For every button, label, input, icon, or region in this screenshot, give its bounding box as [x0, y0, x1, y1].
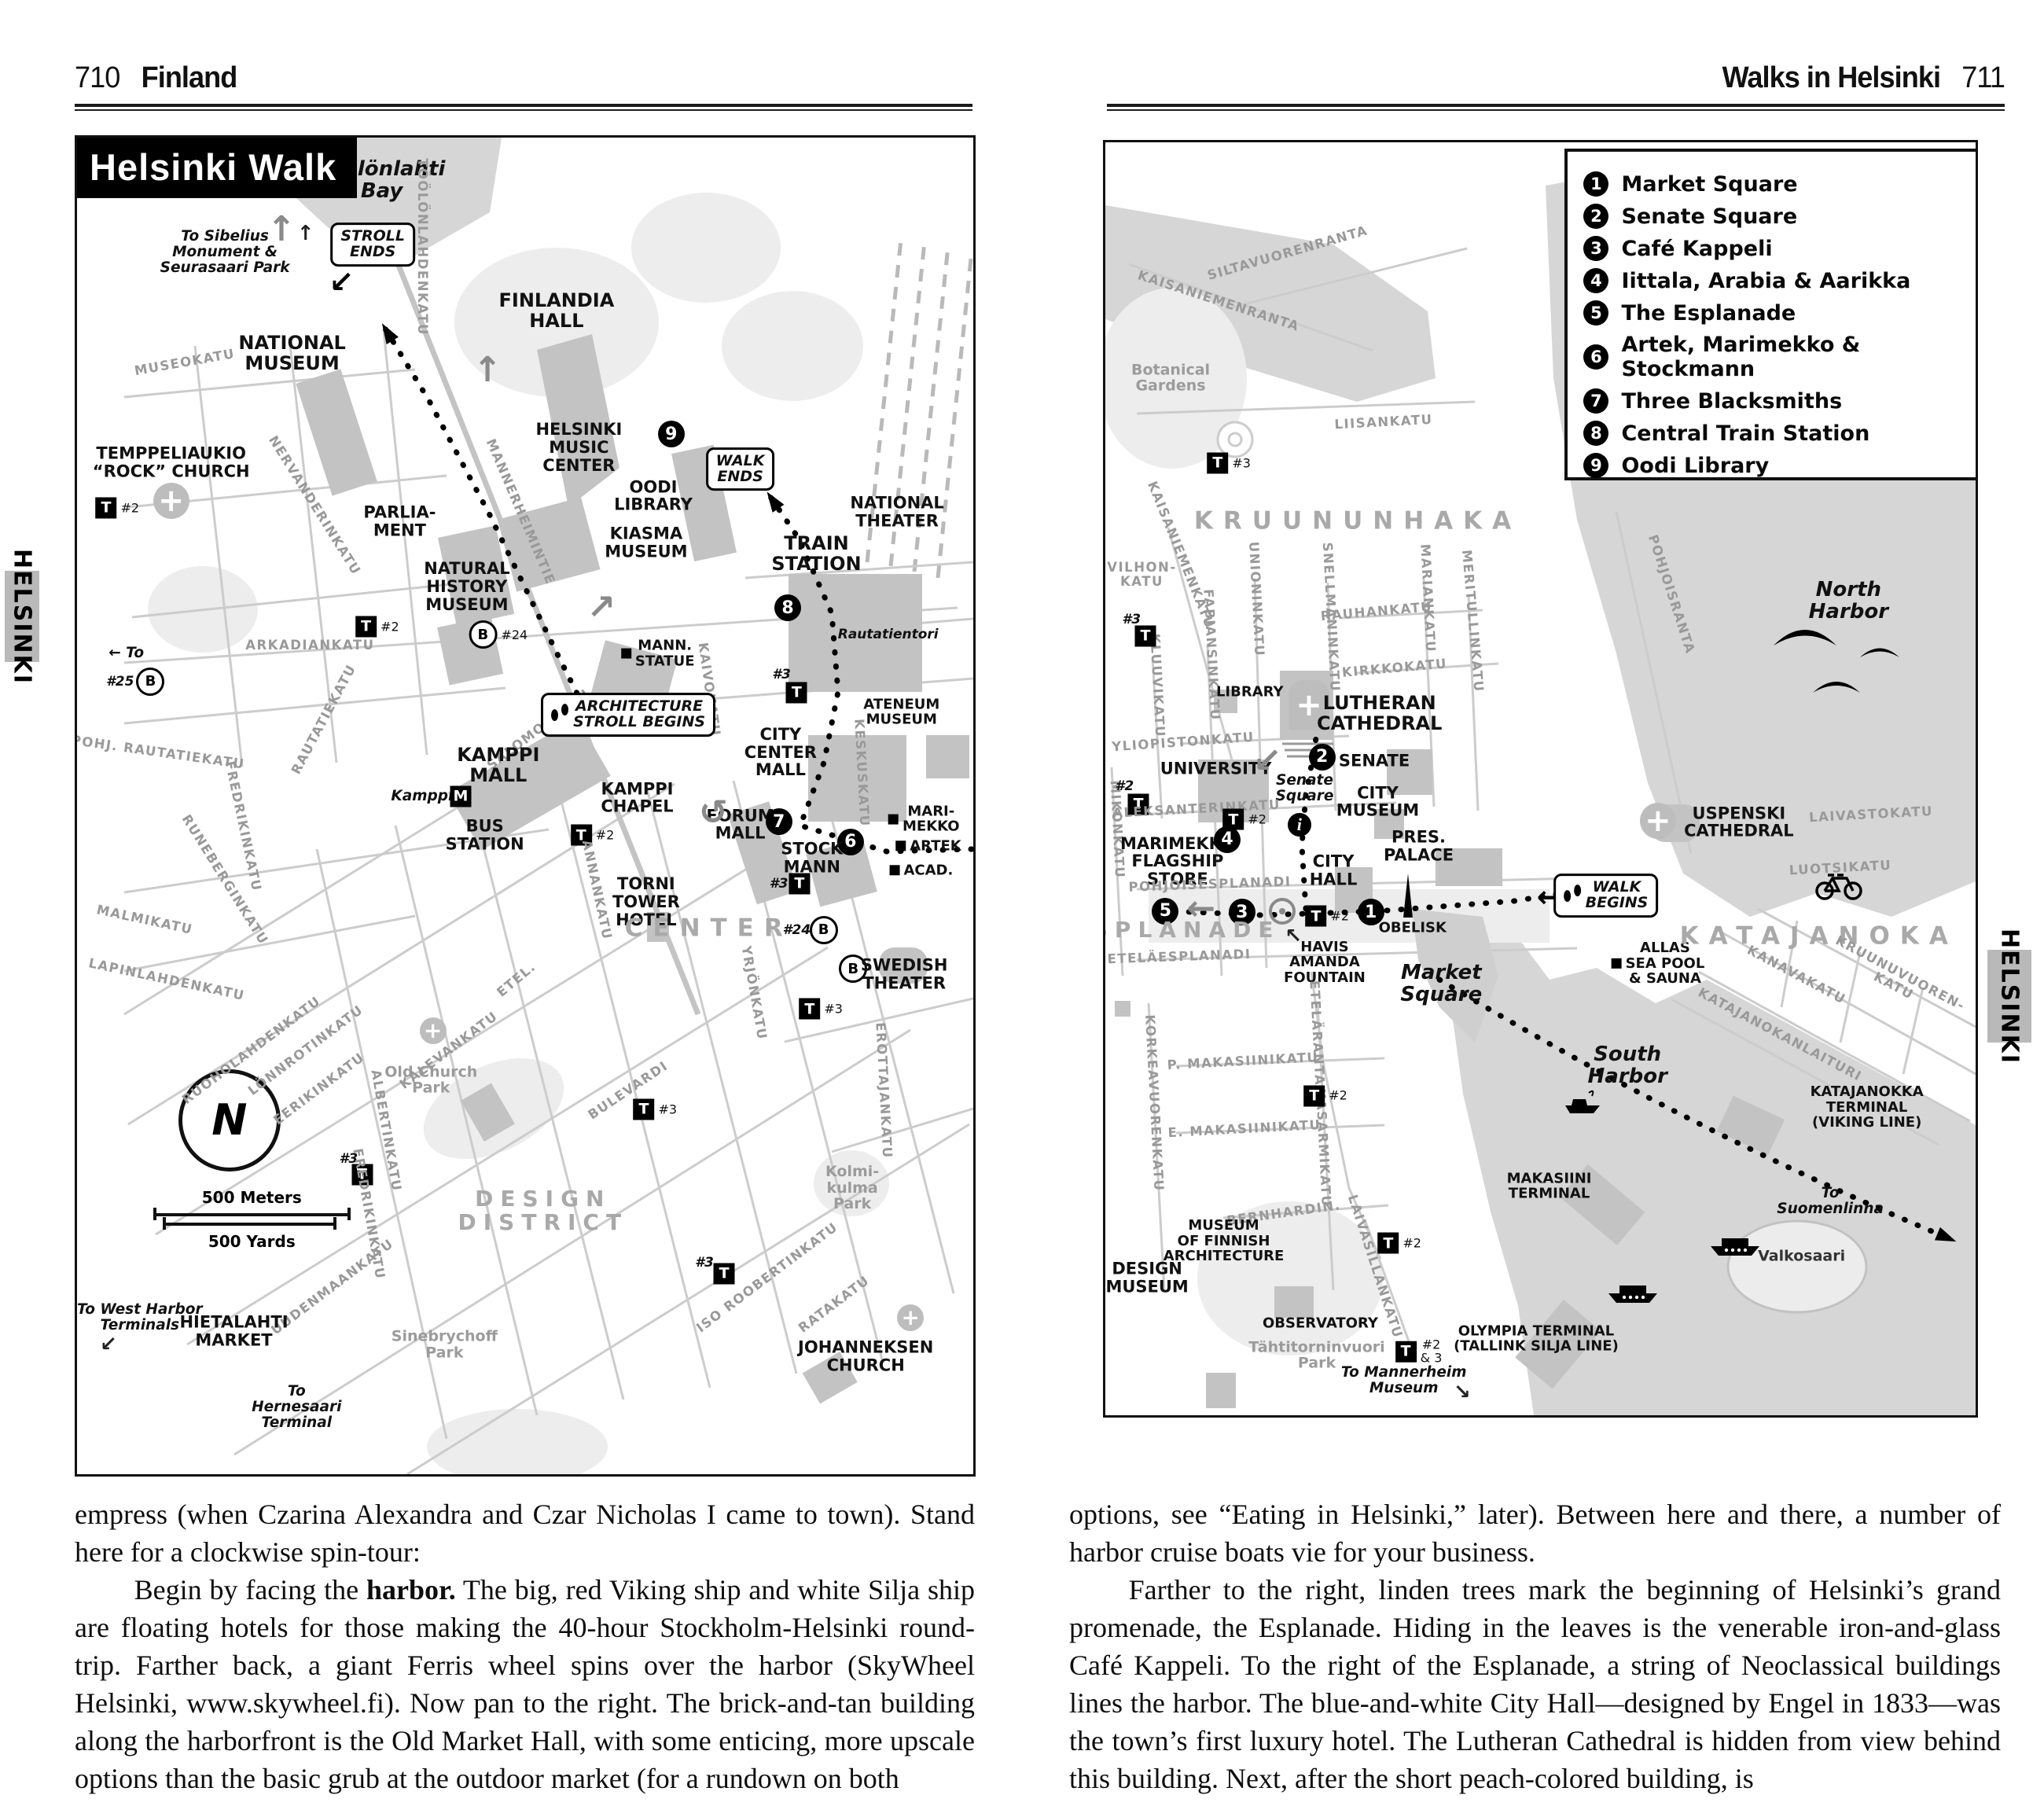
helsinki-walk-map: Helsinki Walk + + + N 500 Meters 500 Yar…	[75, 135, 976, 1477]
map-label: ↘	[1454, 1381, 1471, 1403]
map-label: T	[714, 1263, 735, 1285]
body-paragraph: options, see “Eating in Helsinki,” later…	[1069, 1495, 2001, 1571]
map-label: To Hernesaari Terminal	[252, 1384, 341, 1431]
map-label-text: LUTHERAN CATHEDRAL	[1317, 693, 1442, 734]
map-label-text: #24	[501, 628, 528, 642]
map-label: T	[1134, 626, 1156, 647]
map-label-text: KATAJANOKA	[1680, 924, 1958, 950]
rock-church-icon: +	[153, 483, 189, 519]
legend-number-icon: 8	[1583, 421, 1608, 446]
map-label-text: NATIONAL THEATER	[850, 494, 943, 529]
map-label-text: To West Harbor Terminals	[77, 1302, 203, 1333]
map-label-text: #2	[121, 501, 140, 514]
right-helsinki-tab: HELSINKI	[1987, 950, 2031, 1043]
map-label: CENTER	[625, 916, 793, 942]
tram-stop-icon: T	[1207, 452, 1228, 473]
map-label: 9	[658, 421, 685, 447]
right-page-number: 711	[1961, 61, 2005, 94]
body-text: options, see “Eating in Helsinki,” later…	[1069, 1499, 2001, 1568]
map-label-text: North Harbor	[1785, 579, 1913, 623]
johanneksen-church-icon: +	[897, 1304, 924, 1331]
map-label-text: ARKADIANKATU	[245, 638, 374, 653]
map-label-text: Kamppi	[391, 789, 453, 804]
legend-label: The Esplanade	[1621, 301, 1796, 326]
map-label-text: #2	[1329, 1089, 1347, 1102]
map-label-text: ARTEK	[910, 838, 961, 853]
map-label: CITY HALL	[1310, 852, 1358, 888]
map-label: VILHON- KATU	[1107, 561, 1176, 590]
map-label: 2	[1309, 744, 1336, 771]
map-label: T#2	[1305, 906, 1349, 927]
tram-stop-icon: T	[355, 616, 377, 638]
map-label-text: #3	[659, 1102, 678, 1116]
map-label: ARTEK	[895, 838, 961, 853]
map-label-text: BUS STATION	[446, 818, 524, 853]
map-label-text: #24	[783, 923, 811, 937]
map-label: TÖÖLÖNLAHDENKATU	[415, 158, 429, 336]
map-label: OODI LIBRARY	[614, 478, 693, 513]
map-label: Sinebrychoff Park	[392, 1329, 498, 1361]
legend-item: 1Market Square	[1583, 171, 1965, 197]
scale-yards-bar	[163, 1223, 336, 1226]
map-label-text: OBELISK	[1379, 920, 1447, 935]
left-page-header: 710 Finland	[75, 61, 237, 95]
tram-stop-icon: T	[789, 873, 810, 894]
map-label-text: ↙	[100, 1333, 117, 1355]
map-label: M	[450, 786, 471, 807]
map-label-text: To Hernesaari Terminal	[252, 1384, 341, 1431]
scale-meters-label: 500 Meters	[153, 1188, 351, 1207]
map-label: KATAJANOKA	[1680, 924, 1958, 950]
map-label-text: ↙	[329, 266, 354, 298]
map-label-text: #3	[695, 1256, 714, 1270]
left-page-section: Finland	[142, 61, 237, 94]
obelisk-icon	[1403, 874, 1413, 918]
marker-square-icon	[1612, 958, 1622, 969]
map-label: 4	[1214, 826, 1241, 853]
walk-overview-map: 1Market Square2Senate Square3Café Kappel…	[1103, 140, 1978, 1418]
map-label-text: OODI LIBRARY	[614, 478, 693, 513]
map-label: NATURAL HISTORY MUSEUM	[424, 560, 509, 613]
legend-number-icon: 6	[1583, 344, 1608, 370]
legend-number-icon: 3	[1583, 236, 1608, 261]
map-label-text: ESPLANADE	[1103, 918, 1280, 942]
map-label: To Suomenlinna	[1777, 1186, 1884, 1217]
map-label: i	[1288, 813, 1311, 837]
metro-stop-icon: M	[450, 786, 471, 807]
map-label: BUS STATION	[446, 818, 524, 853]
legend-item: 9Oodi Library	[1583, 453, 1965, 478]
left-helsinki-tab: HELSINKI	[5, 571, 39, 662]
marker-square-icon	[895, 841, 906, 851]
map-label-text: Rautatientori	[838, 627, 939, 642]
map-label-text: KATAJANOKKA TERMINAL (VIKING LINE)	[1811, 1084, 1924, 1130]
map-label: T	[789, 873, 810, 894]
old-church-icon: +	[420, 1017, 447, 1044]
map-label-text: Kolmi- kulma Park	[825, 1164, 879, 1212]
legend-label: Senate Square	[1621, 204, 1797, 229]
map-label: B#24	[469, 620, 528, 649]
map-label-text: TEMPPELIAUKIO “ROCK” CHURCH	[93, 444, 250, 480]
left-page-number: 710	[75, 61, 119, 94]
map-label: TEMPPELIAUKIO “ROCK” CHURCH	[93, 444, 250, 480]
map-label: ARKADIANKATU	[245, 638, 374, 653]
map-label-text: KRUUNUNHAKA	[1194, 509, 1521, 535]
map-label: HELSINKI MUSIC CENTER	[535, 421, 622, 474]
map-label: ↗	[586, 590, 616, 627]
map-label-text: #2	[1330, 910, 1349, 923]
map-label: MUSEUM OF FINNISH ARCHITECTURE	[1164, 1218, 1285, 1263]
left-body-text: empress (when Czarina Alexandra and Czar…	[75, 1495, 975, 1797]
map-label: Senate Square	[1276, 773, 1334, 804]
map-label-text: ↺	[699, 794, 728, 832]
map-label: To Mannerheim Museum	[1341, 1365, 1467, 1396]
bus-stop-icon: B	[810, 916, 838, 944]
map-label: North Harbor	[1785, 579, 1913, 623]
scale-yards-label: 500 Yards	[153, 1232, 351, 1251]
map-label: STOCK MANN	[781, 840, 843, 876]
map-label-text: #2	[1248, 813, 1266, 826]
map-label-text: ← To	[108, 646, 144, 661]
map-label: LIBRARY	[1216, 685, 1284, 700]
map-label-text: STOCK MANN	[781, 840, 843, 876]
map-label: #3	[695, 1256, 714, 1270]
map-label: ↑	[297, 223, 314, 245]
right-body-text: options, see “Eating in Helsinki,” later…	[1069, 1495, 2001, 1797]
map-label: Botanical Gardens	[1131, 362, 1210, 394]
legend-number-icon: 9	[1583, 453, 1608, 478]
numbered-stop-icon: 9	[658, 421, 685, 447]
map-label: T#2	[1377, 1233, 1421, 1254]
map-label-text: TÖÖLÖNLAHDENKATU	[415, 158, 429, 336]
map-label: Valkosaari	[1758, 1248, 1845, 1264]
map-label-text: #3	[770, 876, 789, 890]
legend-label: Oodi Library	[1621, 454, 1769, 478]
map-label: CITY MUSEUM	[1336, 784, 1419, 819]
legend-item: 5The Esplanade	[1583, 300, 1965, 326]
right-header-rule	[1107, 104, 2005, 111]
map-label-text: ↘	[1454, 1381, 1471, 1403]
map-label-text: MAKASIINI TERMINAL	[1507, 1171, 1592, 1201]
map-label: NATIONAL THEATER	[850, 494, 943, 529]
map-label-text: #25	[106, 675, 134, 689]
map-label: Kamppi	[391, 789, 453, 804]
map-label: WALK ENDS	[706, 447, 775, 491]
map-label: #2	[1116, 779, 1134, 793]
map-label: MARI- MEKKO	[888, 804, 960, 835]
map-label-text: CITY MUSEUM	[1336, 784, 1419, 819]
map-label: ATENEUM MUSEUM	[863, 697, 939, 728]
legend-label: Café Kappeli	[1621, 237, 1772, 261]
map-label: #3	[770, 876, 789, 890]
map-label-text: ARCHITECTURE STROLL BEGINS	[573, 699, 705, 730]
map-label: USPENSKI CATHEDRAL	[1684, 804, 1794, 840]
map-label: ↙	[329, 266, 354, 298]
legend-number-icon: 5	[1583, 300, 1608, 326]
body-paragraph: empress (when Czarina Alexandra and Czar…	[75, 1495, 975, 1571]
map-label: KAMPPI MALL	[457, 745, 539, 786]
map-label-text: MANN. STATUE	[635, 638, 695, 669]
map-label-text: ↗	[586, 590, 616, 627]
map-label-text: #3	[1232, 456, 1251, 469]
map-label: South Harbor	[1587, 1043, 1667, 1087]
info-icon: i	[1288, 813, 1311, 837]
body-text: empress (when Czarina Alexandra and Czar…	[75, 1499, 975, 1568]
map-label-text: MARI- MEKKO	[903, 804, 960, 835]
legend-label: Market Square	[1621, 172, 1797, 197]
map-label: OBSERVATORY	[1263, 1316, 1378, 1331]
map-label: STROLL ENDS	[330, 223, 415, 267]
legend-list: 1Market Square2Senate Square3Café Kappel…	[1583, 171, 1965, 478]
map-label-text: CITY CENTER MALL	[744, 726, 817, 779]
map-label: DESIGN DISTRICT	[458, 1187, 629, 1234]
map-label: DESIGN MUSEUM	[1105, 1260, 1188, 1295]
map-label-text: TRAIN STATION	[771, 534, 861, 575]
left-header-rule	[75, 104, 972, 111]
walk-legend: 1Market Square2Senate Square3Café Kappel…	[1564, 149, 1978, 480]
map-label-text: PARLIA- MENT	[363, 503, 436, 539]
map-label-text: VILHON- KATU	[1107, 561, 1176, 590]
legend-item: 3Café Kappeli	[1583, 236, 1965, 261]
body-text: The big, red Viking ship and white Silja…	[75, 1574, 975, 1794]
map-label: KIASMA MUSEUM	[605, 524, 687, 560]
map-label: T#2	[96, 497, 140, 518]
map-label-text: Senate Square	[1276, 773, 1334, 804]
right-page-title: Walks in Helsinki	[1722, 61, 1940, 94]
map-label-text: PRES. PALACE	[1384, 829, 1454, 864]
map-label-text: Sinebrychoff Park	[392, 1329, 498, 1361]
map-label-text: #2	[596, 829, 615, 842]
map-label: To West Harbor Terminals	[77, 1302, 203, 1333]
tram-stop-icon: T	[1303, 1085, 1325, 1106]
map-label-text: ↑	[267, 211, 296, 249]
tram-stop-icon: T	[1377, 1233, 1399, 1254]
map-label-text: CENTER	[625, 916, 793, 942]
map-label: T#2	[1303, 1085, 1347, 1106]
numbered-stop-icon: 4	[1214, 826, 1241, 853]
map-label-text: ↑	[297, 223, 314, 245]
map-label-text: DESIGN MUSEUM	[1105, 1260, 1188, 1295]
body-paragraph: Farther to the right, linden trees mark …	[1069, 1571, 2001, 1797]
map-label-text: FINLANDIA HALL	[498, 291, 614, 332]
legend-label: Artek, Marimekko & Stockmann	[1621, 333, 1965, 381]
map-label-text: #2	[380, 620, 399, 634]
map-label: MANN. STATUE	[621, 638, 695, 669]
map-label: SENATE	[1339, 752, 1410, 770]
map-label: KRUUNUNHAKA	[1194, 509, 1521, 535]
map-label: T#3	[1207, 452, 1251, 473]
map-label: #24	[783, 923, 811, 937]
tram-stop-icon: T	[96, 497, 117, 518]
scale-meters-bar	[153, 1213, 351, 1216]
tram-stop-icon: T	[634, 1098, 655, 1120]
map-label: 8	[774, 594, 801, 621]
bus-stop-icon: B	[469, 620, 497, 649]
map-label: #3	[1122, 612, 1141, 627]
map-label: FINLANDIA HALL	[498, 291, 614, 332]
map-label: Market Square	[1400, 962, 1482, 1006]
map-label-text: WALK BEGINS	[1586, 881, 1649, 912]
map-label-text: KAMPPI MALL	[457, 745, 539, 786]
map-label-text: USPENSKI CATHEDRAL	[1684, 804, 1794, 840]
body-text-bold: harbor.	[366, 1574, 456, 1606]
map-label: OLYMPIA TERMINAL (TALLINK SILJA LINE)	[1454, 1323, 1619, 1354]
numbered-stop-icon: 8	[774, 594, 801, 621]
map-label-text: ↑	[473, 351, 502, 389]
tram-stop-icon: T	[799, 999, 820, 1020]
map-label-text: JOHANNEKSEN CHURCH	[798, 1339, 933, 1374]
bus-stop-icon: B	[136, 668, 164, 696]
map-label-text: #2	[1402, 1237, 1421, 1250]
marker-square-icon	[888, 815, 899, 825]
legend-label: Central Train Station	[1621, 421, 1869, 446]
map-label-text: MUSEUM OF FINNISH ARCHITECTURE	[1164, 1218, 1285, 1263]
marker-square-icon	[621, 649, 631, 659]
map-label: 7	[766, 808, 792, 835]
map-label: TRAIN STATION	[771, 534, 861, 575]
map-label: PRES. PALACE	[1384, 829, 1454, 864]
tram-stop-icon: T	[786, 682, 807, 703]
map-label: OBELISK	[1379, 920, 1447, 935]
body-text: Farther to the right, linden trees mark …	[1069, 1574, 2001, 1794]
map-label: ARCHITECTURE STROLL BEGINS	[541, 693, 715, 737]
map-label-text: LIBRARY	[1216, 685, 1284, 700]
map-label: CITY CENTER MALL	[744, 726, 817, 779]
map-label: B	[810, 916, 838, 944]
legend-number-icon: 2	[1583, 204, 1608, 229]
marker-square-icon	[889, 865, 899, 875]
map-label-text: South Harbor	[1587, 1043, 1667, 1087]
legend-number-icon: 7	[1583, 388, 1608, 414]
legend-item: 6Artek, Marimekko & Stockmann	[1583, 333, 1965, 381]
map-label-text: ATENEUM MUSEUM	[863, 697, 939, 728]
map-label-text: HAVIS AMANDA FOUNTAIN	[1284, 939, 1366, 984]
left-map-title: Helsinki Walk	[77, 138, 357, 198]
map-label: Rautatientori	[838, 627, 939, 642]
map-label-text: DESIGN DISTRICT	[458, 1187, 629, 1234]
map-label-text: #3	[1122, 612, 1141, 627]
map-label-text: Market Square	[1400, 962, 1482, 1006]
map-label: KAMPPI CHAPEL	[601, 780, 673, 815]
map-label-text: #2	[1116, 779, 1134, 793]
right-tab-label: HELSINKI	[1996, 929, 2024, 1065]
map-label-text: #2 & 3	[1421, 1338, 1443, 1366]
map-label: T	[786, 682, 807, 703]
map-scale: 500 Meters 500 Yards	[153, 1188, 351, 1256]
body-text: Begin by facing the	[134, 1574, 366, 1606]
legend-item: 8Central Train Station	[1583, 421, 1965, 446]
map-label: #3	[772, 668, 791, 682]
map-label: Kolmi- kulma Park	[825, 1164, 879, 1212]
right-page-header: Walks in Helsinki 711	[1152, 61, 2005, 95]
map-label-text: Valkosaari	[1758, 1248, 1845, 1264]
map-label: LUTHERAN CATHEDRAL	[1317, 693, 1442, 734]
map-label: ↺	[699, 794, 728, 832]
map-label-text: SENATE	[1339, 752, 1410, 770]
map-label-text: OBSERVATORY	[1263, 1316, 1378, 1331]
map-label-text: WALK ENDS	[716, 454, 765, 485]
map-label-text: NATIONAL MUSEUM	[238, 333, 345, 374]
map-label: ↑	[473, 351, 502, 389]
map-label: HAVIS AMANDA FOUNTAIN	[1284, 939, 1366, 984]
numbered-stop-icon: 2	[1309, 744, 1336, 771]
map-label-text: To Suomenlinna	[1777, 1186, 1884, 1217]
legend-number-icon: 4	[1583, 268, 1608, 293]
tram-stop-icon: T	[1395, 1341, 1417, 1363]
map-label: ACAD.	[889, 863, 953, 877]
map-label: B	[136, 668, 164, 696]
map-label: NATIONAL MUSEUM	[238, 333, 345, 374]
map-label: ESPLANADE	[1103, 918, 1280, 942]
map-label: KATAJANOKKA TERMINAL (VIKING LINE)	[1811, 1084, 1924, 1130]
uspenski-cathedral-icon: +	[1640, 803, 1676, 839]
map-label: MAKASIINI TERMINAL	[1507, 1171, 1592, 1201]
map-label: SWEDISH THEATER	[861, 957, 948, 992]
map-label: T#3	[799, 999, 843, 1020]
legend-label: Iittala, Arabia & Aarikka	[1621, 269, 1910, 293]
map-label-text: STROLL ENDS	[340, 229, 405, 260]
map-label-text: OLYMPIA TERMINAL (TALLINK SILJA LINE)	[1454, 1323, 1619, 1354]
map-label: T#3	[634, 1098, 678, 1120]
map-label-text: #3	[824, 1002, 843, 1016]
tram-stop-icon: T	[714, 1263, 735, 1285]
legend-item: 2Senate Square	[1583, 204, 1965, 229]
map-label: T#2 & 3	[1395, 1338, 1443, 1366]
map-label-text: To Mannerheim Museum	[1341, 1365, 1467, 1396]
map-label-text: Botanical Gardens	[1131, 362, 1210, 394]
map-label: JOHANNEKSEN CHURCH	[798, 1339, 933, 1374]
map-label-text: HELSINKI MUSIC CENTER	[535, 421, 622, 474]
left-tab-label: HELSINKI	[9, 549, 36, 685]
map-label: WALK BEGINS	[1553, 874, 1659, 918]
body-paragraph: Begin by facing the harbor. The big, red…	[75, 1571, 975, 1797]
map-label: ← To	[108, 646, 144, 661]
legend-number-icon: 1	[1583, 171, 1608, 197]
map-label-text: KAMPPI CHAPEL	[601, 780, 673, 815]
map-label-text: CITY HALL	[1310, 852, 1358, 888]
left-map-base-art	[77, 138, 973, 1474]
map-label: ↑	[267, 211, 296, 249]
map-label: ↙	[100, 1333, 117, 1355]
legend-label: Three Blacksmiths	[1621, 389, 1842, 414]
map-label-text: SWEDISH THEATER	[861, 957, 948, 992]
legend-item: 7Three Blacksmiths	[1583, 388, 1965, 414]
legend-item: 4Iittala, Arabia & Aarikka	[1583, 268, 1965, 293]
map-label: T#2	[355, 616, 399, 638]
map-label-text: #3	[772, 668, 791, 682]
tram-stop-icon: T	[1134, 626, 1156, 647]
map-label-text: NATURAL HISTORY MUSEUM	[424, 560, 509, 613]
tram-stop-icon: T	[1305, 906, 1326, 927]
map-label: #25	[106, 675, 134, 689]
map-label-text: KIASMA MUSEUM	[605, 524, 687, 560]
numbered-stop-icon: 7	[766, 808, 792, 835]
map-label-text: ACAD.	[903, 863, 953, 877]
map-label: PARLIA- MENT	[363, 503, 436, 539]
